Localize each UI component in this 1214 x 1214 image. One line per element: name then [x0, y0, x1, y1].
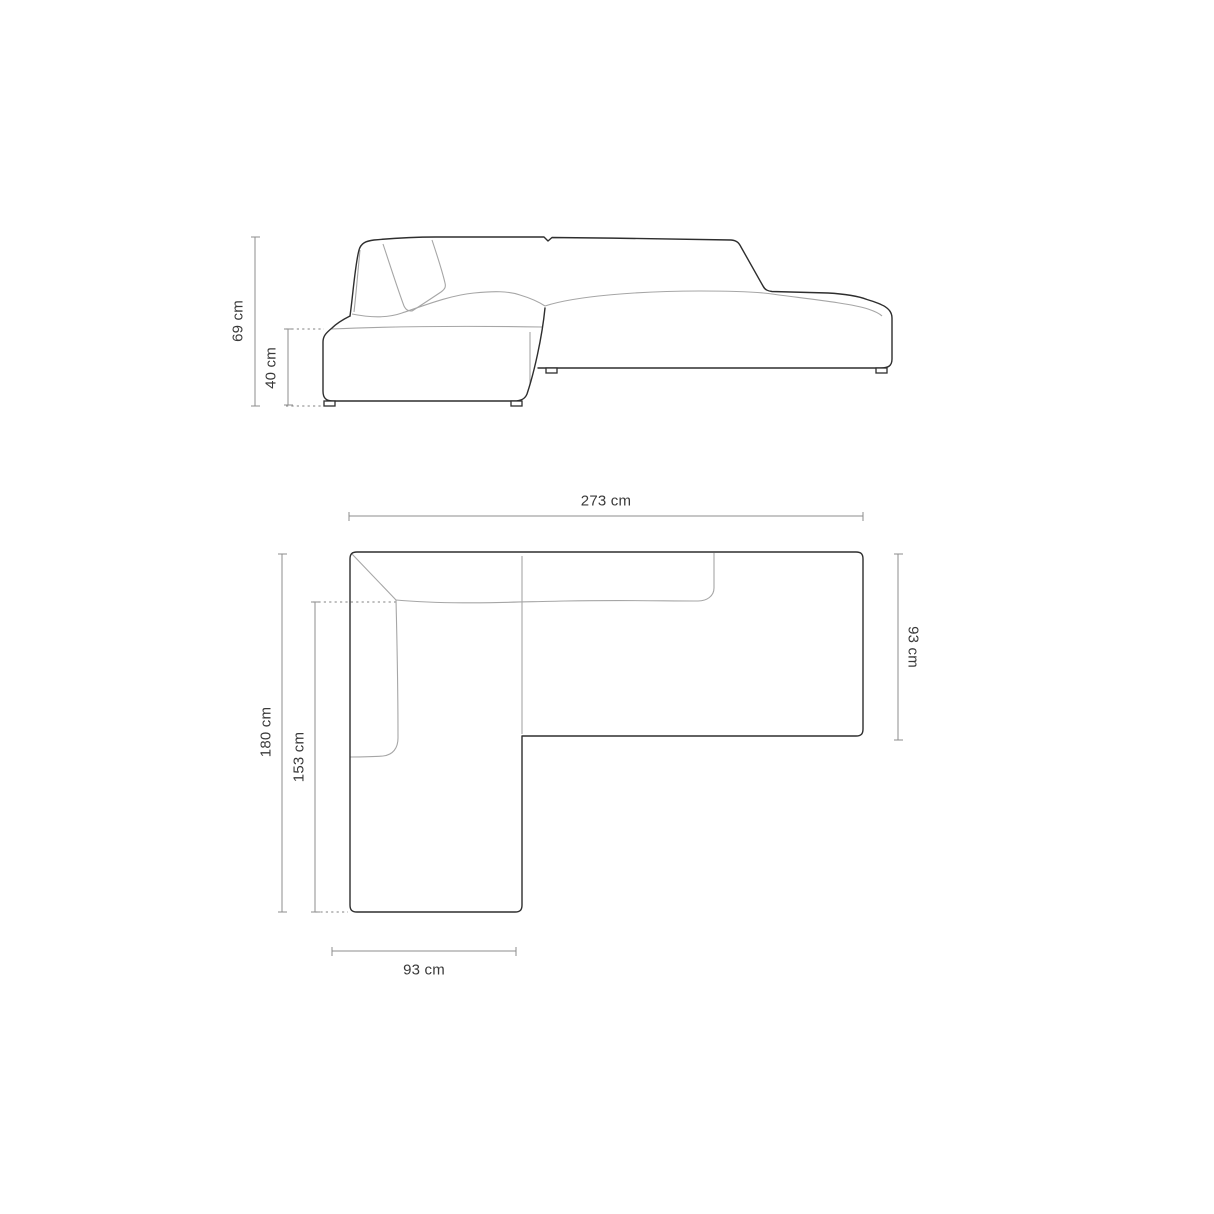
side-total-height-label: 69 cm [231, 300, 246, 342]
side-view-outline [323, 237, 892, 401]
sofa-dimension-diagram: 69 cm 40 cm 273 cm 93 cm 180 cm 153 cm 9… [0, 0, 1214, 1214]
top-view-seam-lines [350, 553, 714, 757]
side-view-group [251, 237, 892, 406]
top-total-depth-label: 180 cm [259, 707, 274, 757]
top-view-outline [350, 552, 863, 912]
side-view-seam-lines [331, 240, 882, 385]
top-chaise-width-label: 93 cm [403, 963, 445, 978]
side-seat-height-label: 40 cm [264, 347, 279, 389]
top-view-group [278, 512, 903, 956]
technical-drawing-svg [0, 0, 1214, 1214]
top-total-width-label: 273 cm [581, 494, 631, 509]
top-view-dimension-lines [278, 512, 903, 956]
top-chaise-inner-length-label: 153 cm [292, 732, 307, 782]
top-main-depth-label: 93 cm [906, 626, 921, 668]
side-view-extension-dotted-lines [286, 329, 324, 406]
